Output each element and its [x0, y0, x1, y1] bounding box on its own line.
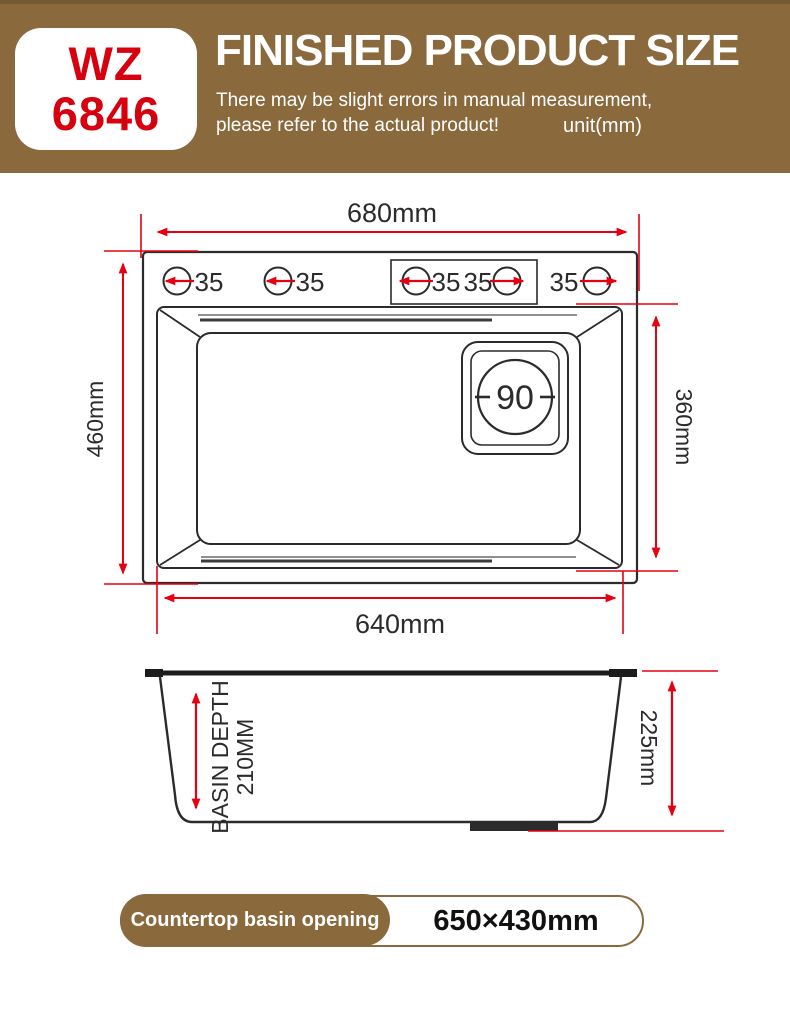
top-view: 90 35 35 35 35	[143, 252, 637, 583]
dim-225-label: 225mm	[636, 710, 662, 787]
header-band: WZ 6846 FINISHED PRODUCT SIZE There may …	[0, 0, 790, 173]
header-top-edge	[0, 0, 790, 4]
page-title: FINISHED PRODUCT SIZE	[215, 26, 790, 76]
basin-inner-edge	[197, 333, 580, 544]
faucet-holes: 35 35 35 35 35	[164, 260, 617, 304]
basin-depth-value: 210MM	[232, 719, 258, 796]
countertop-opening-label: Countertop basin opening	[120, 894, 390, 946]
basin-outer-edge	[157, 307, 622, 568]
product-size-infographic: WZ 6846 FINISHED PRODUCT SIZE There may …	[0, 0, 790, 1010]
top-view-dimensions: 680mm 640mm 460mm 360mm	[82, 198, 697, 639]
drain-grooves	[198, 315, 577, 561]
countertop-opening-value: 650×430mm	[390, 905, 642, 938]
sink-outer-rim	[143, 252, 637, 583]
basin-corner-bevels	[160, 310, 619, 565]
dim-680-label: 680mm	[347, 198, 437, 228]
drain-diameter-label: 90	[496, 379, 534, 417]
sink-dimension-drawing: 90 35 35 35 35	[0, 173, 790, 890]
hole-label-1: 35	[195, 267, 224, 297]
disclaimer-line1: There may be slight errors in manual mea…	[216, 88, 652, 113]
dim-640-label: 640mm	[355, 609, 445, 639]
basin-depth-label: BASIN DEPTH	[207, 680, 233, 833]
countertop-opening-pill: Countertop basin opening 650×430mm	[120, 895, 644, 947]
side-view: BASIN DEPTH 210MM 225mm	[145, 671, 724, 834]
model-code-line1: WZ	[68, 39, 143, 89]
hole-label-5: 35	[550, 267, 579, 297]
hole-label-2: 35	[296, 267, 325, 297]
basin-shading	[272, 359, 522, 522]
model-code-line2: 6846	[52, 89, 161, 139]
dim-360-label: 360mm	[671, 389, 697, 466]
product-model-card: WZ 6846	[15, 28, 197, 150]
hole-label-4: 35	[464, 267, 493, 297]
drain-fitting	[470, 823, 558, 831]
hole-label-3: 35	[432, 267, 461, 297]
unit-label: unit(mm)	[563, 115, 642, 138]
dim-460-label: 460mm	[82, 381, 108, 458]
side-extension-lines	[528, 671, 724, 831]
